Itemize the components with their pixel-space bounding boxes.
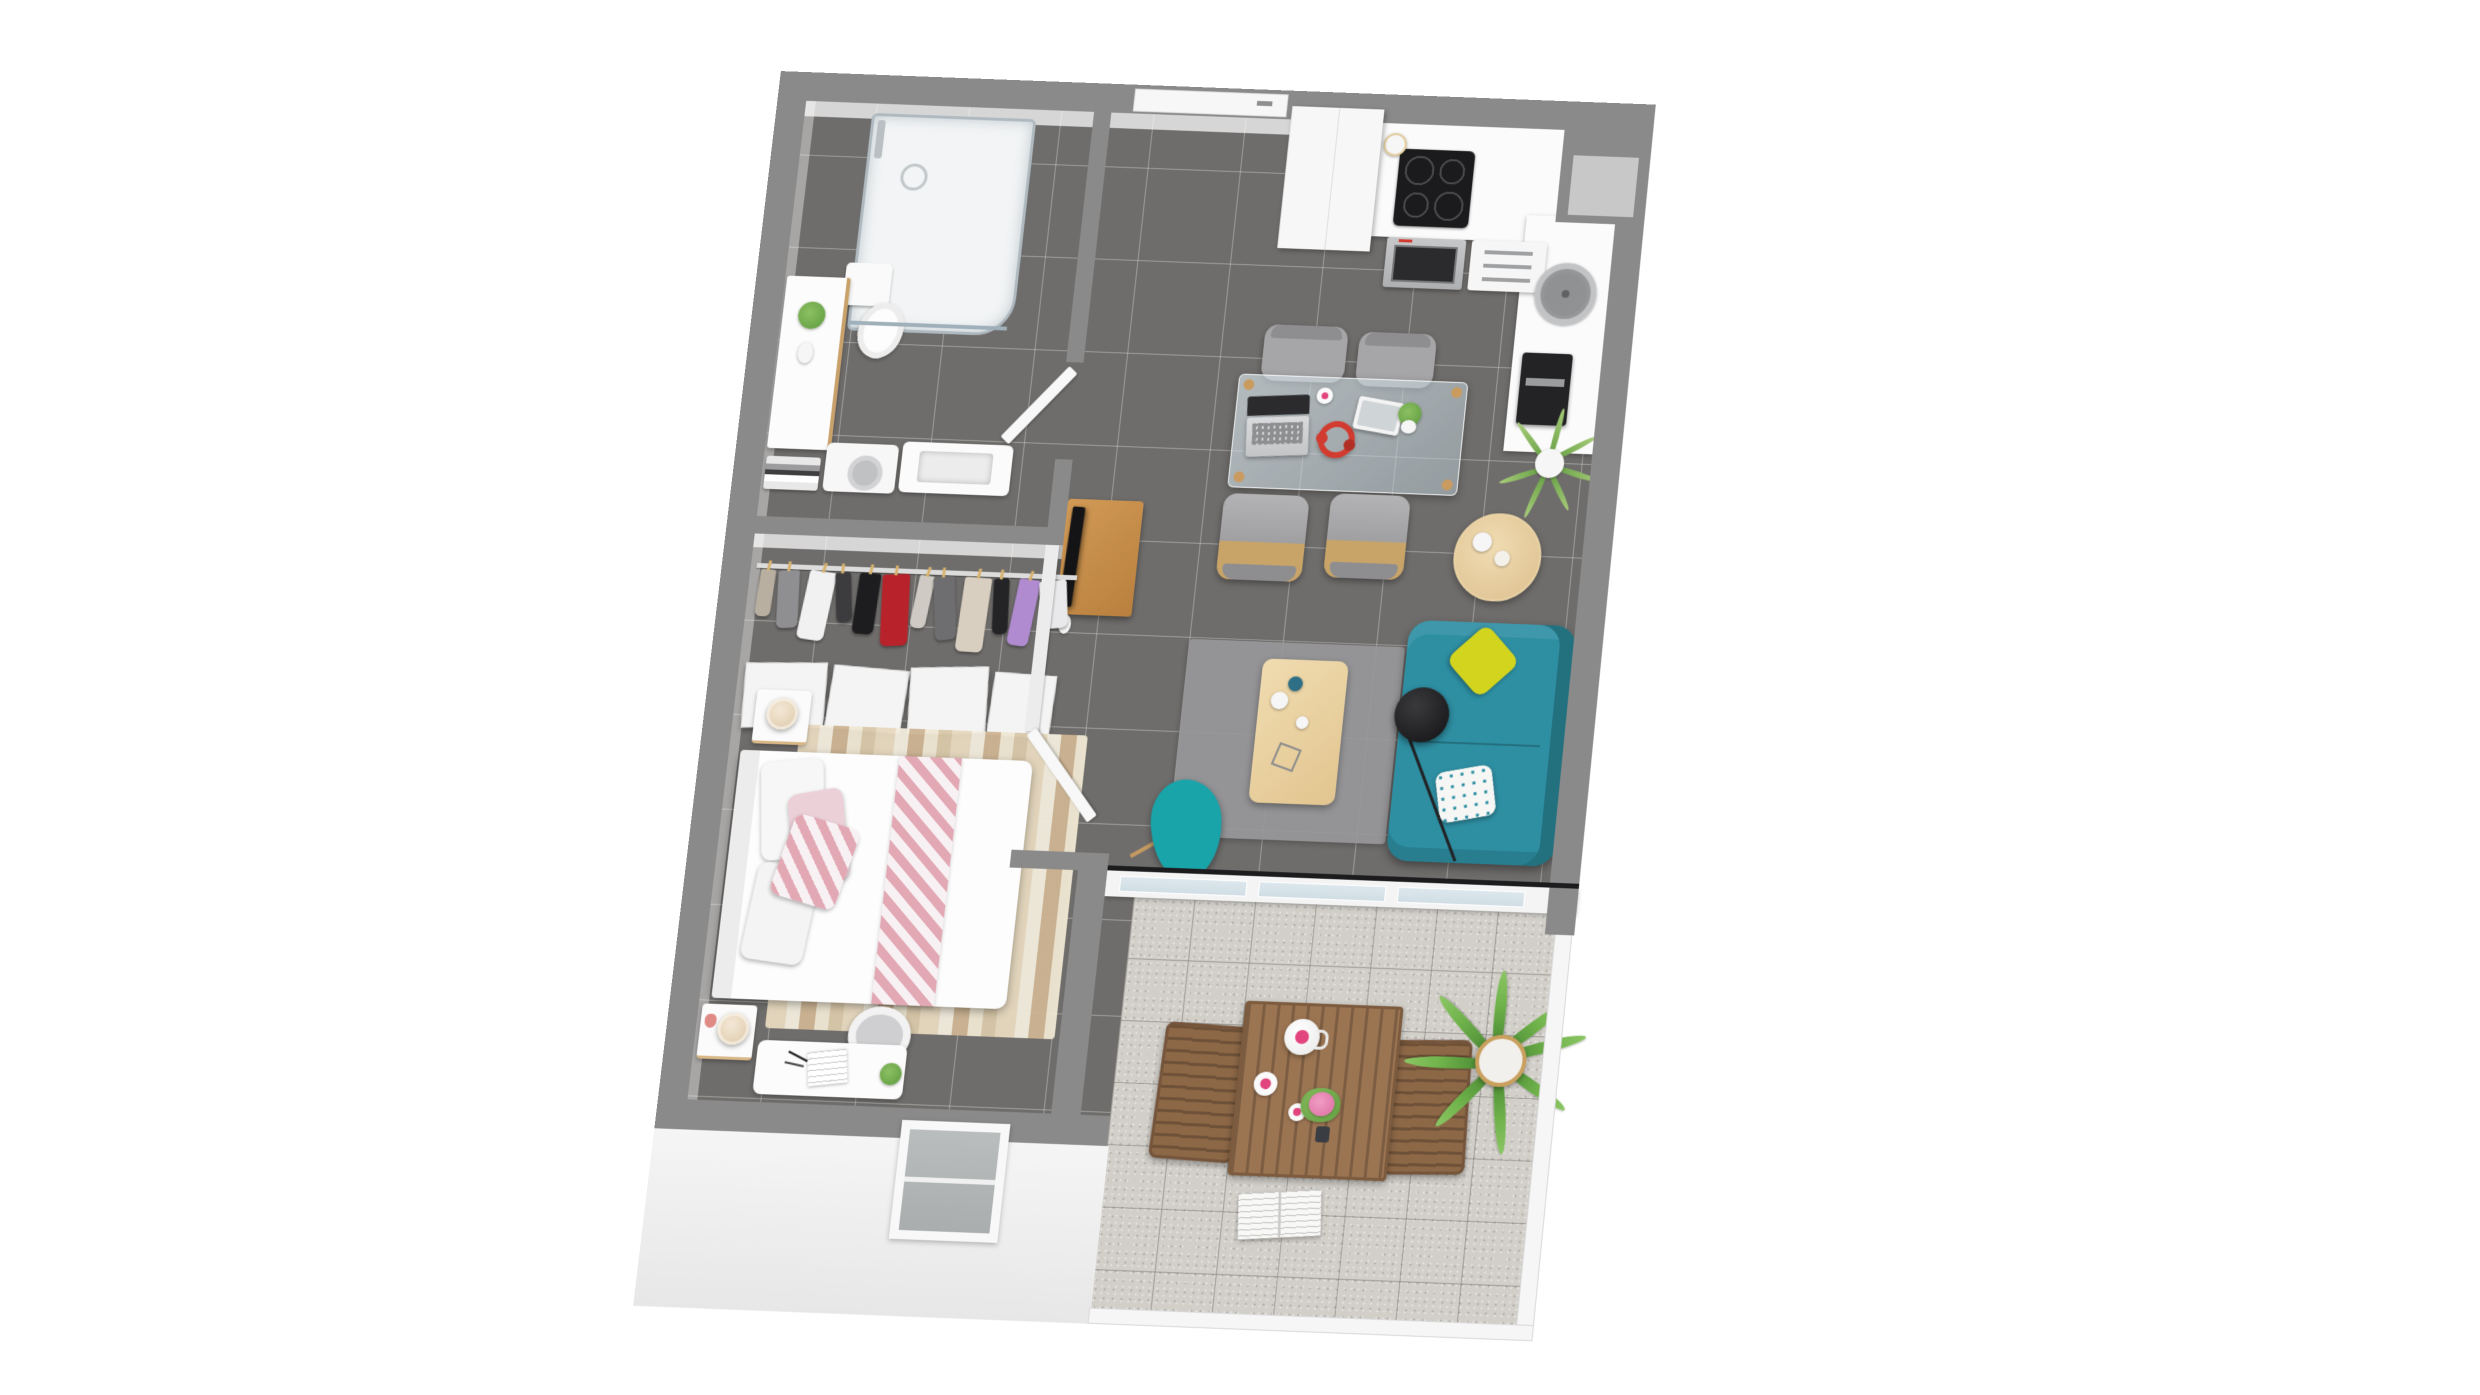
bedroom-window-frame (889, 1120, 1011, 1243)
floorplan-canvas (0, 0, 2480, 1395)
building-facade (633, 1128, 1109, 1324)
balcony-region (1089, 896, 1557, 1324)
coffee-machine (1516, 352, 1573, 426)
bedroom-region (687, 730, 1091, 1114)
entry-door-handle (1257, 101, 1273, 106)
kitchen-region (1264, 119, 1625, 324)
dressing-region (731, 533, 1045, 740)
apartment-plan (632, 71, 1666, 1354)
bathroom-region (757, 101, 1094, 527)
living-region (1108, 502, 1586, 883)
